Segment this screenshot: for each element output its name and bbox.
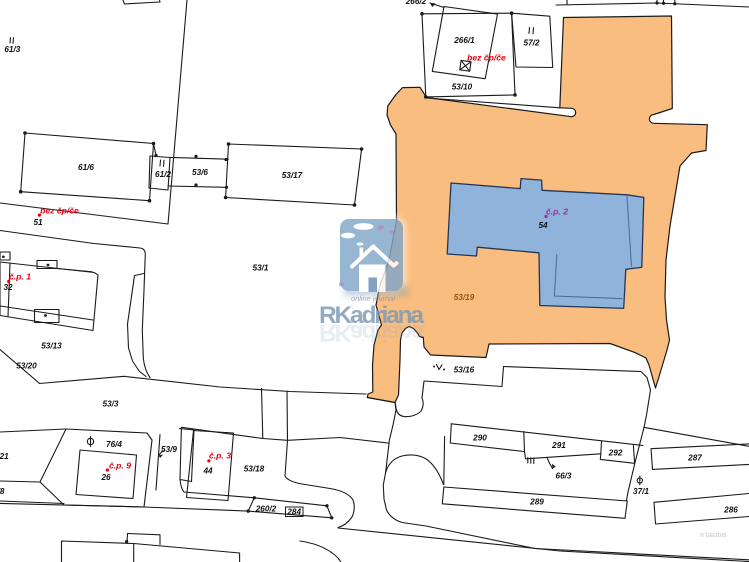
svg-text:291: 291 — [551, 441, 566, 450]
svg-text:61/2: 61/2 — [155, 170, 171, 179]
svg-text:© GEODIS: © GEODIS — [700, 532, 727, 539]
svg-text:RKadriana: RKadriana — [319, 319, 424, 346]
svg-text:66/3: 66/3 — [556, 472, 572, 481]
svg-text:53/9: 53/9 — [161, 445, 177, 454]
svg-text:286: 286 — [723, 506, 738, 515]
svg-text:/21: /21 — [0, 452, 9, 461]
svg-text:290: 290 — [472, 434, 487, 443]
svg-text:260/2: 260/2 — [255, 505, 277, 514]
svg-text:51: 51 — [33, 218, 43, 227]
svg-text:292: 292 — [608, 449, 623, 458]
svg-text:61/6: 61/6 — [78, 163, 94, 172]
svg-text:76/4: 76/4 — [106, 440, 122, 449]
svg-text:53/19: 53/19 — [454, 293, 475, 302]
svg-text:53/16: 53/16 — [454, 366, 475, 375]
svg-text:53/18: 53/18 — [244, 465, 265, 474]
svg-text:287: 287 — [687, 454, 702, 463]
svg-text:č.p. 2: č.p. 2 — [546, 207, 568, 217]
svg-text:54: 54 — [538, 221, 548, 230]
svg-text:44: 44 — [202, 467, 213, 476]
svg-text:266/1: 266/1 — [453, 36, 475, 45]
svg-text:266/2: 266/2 — [405, 0, 427, 6]
svg-text:289: 289 — [529, 498, 544, 507]
svg-text:53/13: 53/13 — [41, 342, 62, 351]
svg-text:53/6: 53/6 — [192, 168, 208, 177]
svg-text:bez čp/če: bez čp/če — [40, 206, 79, 216]
svg-text:bez čp/če: bez čp/če — [467, 53, 506, 63]
svg-text:37/1: 37/1 — [633, 487, 649, 496]
svg-text:53/10: 53/10 — [452, 83, 473, 92]
svg-text:č.p. 3: č.p. 3 — [209, 451, 231, 461]
svg-text:č.p. 9: č.p. 9 — [109, 461, 131, 471]
svg-text:53/3: 53/3 — [103, 400, 119, 409]
svg-text:/8: /8 — [0, 487, 5, 496]
svg-text:57/2: 57/2 — [524, 39, 540, 48]
svg-text:61/3: 61/3 — [4, 45, 20, 54]
svg-text:č.p. 1: č.p. 1 — [9, 272, 31, 282]
svg-text:53/20: 53/20 — [16, 362, 37, 371]
svg-text:32: 32 — [3, 283, 13, 292]
svg-text:53/17: 53/17 — [282, 171, 303, 180]
svg-text:26: 26 — [100, 473, 111, 482]
svg-text:284: 284 — [286, 508, 301, 517]
svg-text:53/1: 53/1 — [253, 264, 269, 273]
